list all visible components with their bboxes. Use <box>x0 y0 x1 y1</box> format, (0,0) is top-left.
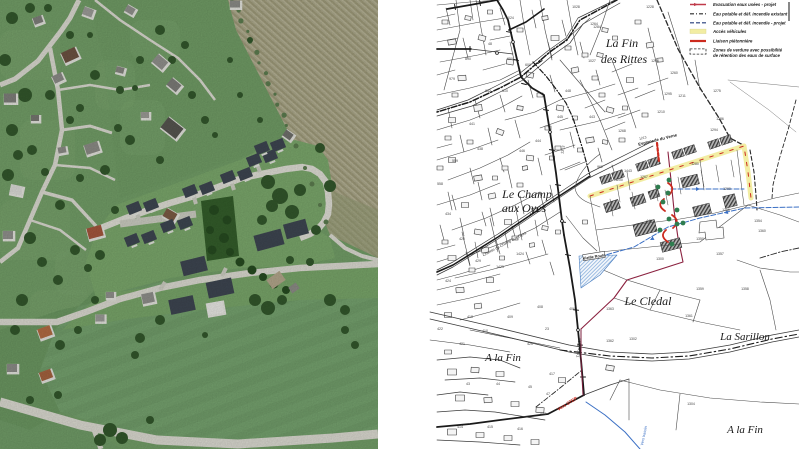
svg-text:1361: 1361 <box>685 314 693 318</box>
svg-text:1024: 1024 <box>506 16 514 20</box>
svg-text:444: 444 <box>535 139 541 143</box>
svg-text:1211: 1211 <box>678 94 686 98</box>
svg-text:1443: 1443 <box>624 169 632 173</box>
svg-text:1210: 1210 <box>657 110 665 114</box>
svg-text:558: 558 <box>437 182 443 186</box>
svg-text:43: 43 <box>466 382 470 386</box>
svg-text:1357: 1357 <box>716 252 724 256</box>
svg-text:422: 422 <box>437 327 443 331</box>
svg-text:420: 420 <box>527 342 533 346</box>
svg-text:1360: 1360 <box>758 229 766 233</box>
svg-text:406: 406 <box>569 307 575 311</box>
svg-text:1300: 1300 <box>656 257 664 261</box>
svg-text:1280: 1280 <box>691 162 699 166</box>
svg-text:1424: 1424 <box>516 252 524 256</box>
svg-text:1284: 1284 <box>593 25 601 29</box>
svg-text:408: 408 <box>537 305 543 309</box>
svg-text:1228: 1228 <box>646 5 654 9</box>
svg-text:Accès véhicules: Accès véhicules <box>712 29 747 34</box>
svg-text:610: 610 <box>502 89 508 93</box>
svg-text:413: 413 <box>540 412 546 416</box>
svg-text:650: 650 <box>507 57 513 61</box>
svg-text:1200: 1200 <box>615 178 623 182</box>
svg-text:1423: 1423 <box>496 265 504 269</box>
svg-text:438: 438 <box>477 147 483 151</box>
svg-text:Le Champ: Le Champ <box>501 187 552 201</box>
svg-text:45: 45 <box>528 385 532 389</box>
svg-text:1028: 1028 <box>572 5 580 9</box>
svg-text:632: 632 <box>485 89 491 93</box>
svg-text:424: 424 <box>445 279 451 283</box>
svg-text:415: 415 <box>487 425 493 429</box>
svg-text:A la Fin: A la Fin <box>726 424 763 436</box>
svg-text:de rétention des eaux de surfa: de rétention des eaux de surface <box>713 53 780 58</box>
svg-text:La Fin: La Fin <box>605 36 638 50</box>
svg-text:Le Cledal: Le Cledal <box>624 294 673 308</box>
svg-text:47: 47 <box>546 392 550 396</box>
svg-text:410: 410 <box>482 329 488 333</box>
svg-text:440: 440 <box>646 219 652 223</box>
svg-text:1362: 1362 <box>606 339 614 343</box>
svg-text:des Rittes: des Rittes <box>601 52 648 66</box>
svg-text:1294: 1294 <box>710 128 718 132</box>
svg-text:Zones de verdure avec possibil: Zones de verdure avec possibilité <box>712 48 783 53</box>
svg-text:44: 44 <box>496 382 500 386</box>
svg-text:Eau potable et déf. incendie -: Eau potable et déf. incendie - projet <box>713 20 786 25</box>
svg-text:429: 429 <box>475 259 481 263</box>
svg-text:1302: 1302 <box>629 337 637 341</box>
svg-text:1286: 1286 <box>716 117 724 121</box>
svg-text:1275: 1275 <box>713 89 721 93</box>
svg-text:1294: 1294 <box>651 59 659 63</box>
svg-text:23: 23 <box>545 327 549 331</box>
svg-text:414: 414 <box>457 425 463 429</box>
svg-text:1359: 1359 <box>696 287 704 291</box>
svg-text:600: 600 <box>525 63 531 67</box>
svg-text:446: 446 <box>519 149 525 153</box>
svg-text:443: 443 <box>589 115 595 119</box>
svg-text:559: 559 <box>452 159 458 163</box>
svg-text:1350: 1350 <box>696 237 704 241</box>
svg-text:441: 441 <box>469 122 475 126</box>
svg-text:1363: 1363 <box>606 307 614 311</box>
svg-text:1290: 1290 <box>723 187 731 191</box>
svg-text:962: 962 <box>597 165 603 169</box>
svg-text:979: 979 <box>449 77 455 81</box>
svg-text:1268: 1268 <box>618 129 626 133</box>
svg-text:1267: 1267 <box>640 175 648 179</box>
svg-text:La Sarillon: La Sarillon <box>719 331 770 343</box>
svg-text:Liaison piétonnière: Liaison piétonnière <box>713 39 753 44</box>
svg-text:1027: 1027 <box>588 59 596 63</box>
svg-text:48: 48 <box>488 42 492 46</box>
svg-text:417: 417 <box>549 372 555 376</box>
svg-text:1354: 1354 <box>754 219 762 223</box>
svg-text:1304: 1304 <box>687 402 695 406</box>
svg-text:416: 416 <box>517 427 523 431</box>
svg-text:A la Fin: A la Fin <box>484 352 521 364</box>
svg-text:434: 434 <box>445 212 451 216</box>
svg-text:418: 418 <box>467 315 473 319</box>
svg-text:421: 421 <box>459 342 465 346</box>
svg-text:aux Oyes: aux Oyes <box>502 201 547 215</box>
svg-text:890: 890 <box>465 57 471 61</box>
svg-text:Eau potable et déf. incendie e: Eau potable et déf. incendie existant <box>713 11 788 16</box>
svg-text:1358: 1358 <box>741 287 749 291</box>
svg-text:448: 448 <box>565 89 571 93</box>
svg-text:445: 445 <box>557 115 563 119</box>
svg-text:1295: 1295 <box>664 92 672 96</box>
svg-text:1260: 1260 <box>670 71 678 75</box>
svg-text:1296: 1296 <box>722 208 730 212</box>
svg-text:409: 409 <box>507 315 513 319</box>
svg-text:Evacuation eaux usées - projet: Evacuation eaux usées - projet <box>713 2 777 7</box>
svg-text:425: 425 <box>459 237 465 241</box>
